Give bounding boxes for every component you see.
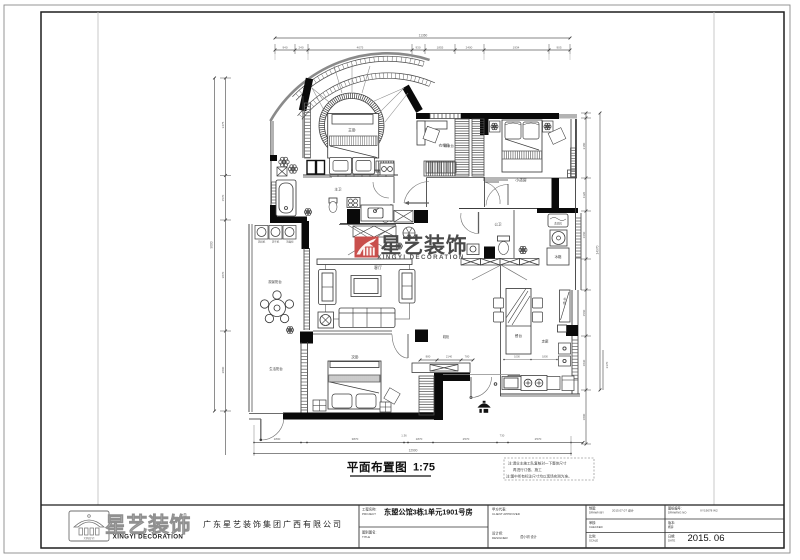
svg-text:3870: 3870 [352, 437, 359, 441]
svg-text:®: ® [183, 512, 187, 519]
svg-text:2015. 06: 2015. 06 [688, 533, 725, 544]
svg-text:1870: 1870 [416, 437, 423, 441]
svg-text:905: 905 [556, 46, 561, 50]
svg-text:DRAWING NO: DRAWING NO [668, 511, 687, 515]
svg-text:11360: 11360 [419, 34, 428, 38]
svg-text:概算: 概算 [668, 525, 674, 529]
svg-text:消毒柜: 消毒柜 [286, 240, 294, 244]
svg-text:2015.07.07 设计: 2015.07.07 设计 [612, 508, 634, 513]
svg-text:注:图中所有标注尺寸均以现场实测为准。: 注:图中所有标注尺寸均以现场实测为准。 [506, 474, 572, 479]
svg-text:柜: 柜 [563, 300, 566, 305]
svg-text:DESIGNER: DESIGNER [492, 536, 509, 540]
svg-text:东盟公馆3栋1单元1901号房: 东盟公馆3栋1单元1901号房 [384, 508, 473, 517]
svg-text:1570: 1570 [221, 194, 225, 201]
svg-text:3475: 3475 [221, 121, 225, 128]
svg-text:洗衣机: 洗衣机 [554, 222, 562, 226]
svg-text:2400: 2400 [466, 46, 473, 50]
svg-text:1120: 1120 [582, 191, 586, 198]
svg-text:客厅: 客厅 [374, 264, 382, 270]
svg-text:12900: 12900 [409, 449, 418, 453]
svg-text:公卫: 公卫 [494, 222, 502, 227]
svg-text:1800: 1800 [582, 413, 586, 420]
svg-text:工程名称:: 工程名称: [362, 507, 377, 512]
svg-text:240: 240 [298, 46, 303, 50]
svg-text:1800: 1800 [274, 437, 281, 441]
svg-text:1560: 1560 [582, 309, 586, 316]
svg-text:1830: 1830 [582, 359, 586, 366]
svg-text:图别图名:: 图别图名: [362, 530, 377, 535]
svg-text:XINGYI DECORATION: XINGYI DECORATION [113, 534, 184, 541]
svg-text:餐台: 餐台 [515, 333, 523, 338]
svg-text:再进行订做、施工: 再进行订做、施工 [513, 467, 542, 472]
svg-text:主卫: 主卫 [334, 187, 342, 192]
svg-text:XINGYI: XINGYI [84, 537, 95, 541]
svg-text:2800: 2800 [221, 366, 225, 373]
svg-text:衣帽间: 衣帽间 [439, 143, 450, 148]
svg-text:1660: 1660 [582, 231, 586, 238]
svg-text:XY19078 W2: XY19078 W2 [700, 509, 718, 513]
svg-text:主卧: 主卧 [348, 127, 356, 133]
svg-text:冰箱: 冰箱 [555, 254, 562, 259]
svg-text:2370: 2370 [605, 361, 609, 368]
svg-text:XINGYI DECORATION: XINGYI DECORATION [377, 254, 465, 261]
svg-text:1855: 1855 [437, 46, 444, 50]
svg-text:730: 730 [500, 434, 505, 438]
svg-text:小孩房: 小孩房 [515, 178, 527, 183]
svg-text:CLIENT APPROVED: CLIENT APPROVED [492, 512, 521, 516]
svg-text:1.36: 1.36 [401, 434, 407, 438]
svg-text:1000: 1000 [514, 355, 520, 359]
svg-text:1934: 1934 [513, 46, 520, 50]
svg-text:注:请业主施工队复核对一下整体尺寸: 注:请业主施工队复核对一下整体尺寸 [508, 461, 567, 466]
svg-text:鞋柜: 鞋柜 [443, 334, 450, 339]
svg-text:谭小明 设计: 谭小明 设计 [520, 534, 538, 539]
svg-text:TITLE: TITLE [362, 535, 370, 539]
svg-text:DATE: DATE [668, 539, 675, 543]
svg-text:洗烘机: 洗烘机 [258, 240, 266, 244]
svg-text:SCALE: SCALE [589, 539, 598, 543]
svg-text:DRAWN BY: DRAWN BY [589, 511, 604, 515]
svg-text:2140: 2140 [446, 355, 453, 359]
svg-text:生活阳台: 生活阳台 [269, 366, 283, 371]
svg-text:平面布置图: 平面布置图 [347, 460, 407, 474]
svg-text:930: 930 [415, 46, 420, 50]
svg-text:940: 940 [282, 46, 287, 50]
svg-text:14970: 14970 [596, 245, 600, 254]
svg-text:次卧: 次卧 [351, 355, 359, 360]
svg-text:2180: 2180 [582, 142, 586, 149]
svg-text:走廊: 走廊 [542, 339, 549, 344]
svg-text:1:75: 1:75 [413, 462, 435, 474]
svg-text:设计师:: 设计师: [492, 531, 503, 536]
svg-text:观景阳台: 观景阳台 [268, 279, 282, 284]
svg-text:2570: 2570 [463, 437, 470, 441]
svg-text:CHECKED: CHECKED [589, 525, 603, 529]
svg-text:广东星艺装饰集团广西有限公司: 广东星艺装饰集团广西有限公司 [203, 519, 343, 529]
svg-text:3870: 3870 [221, 271, 225, 278]
svg-text:9000: 9000 [210, 241, 214, 248]
svg-text:甲方代表:: 甲方代表: [492, 507, 507, 512]
svg-text:880: 880 [426, 355, 431, 359]
svg-text:1800: 1800 [542, 355, 548, 359]
svg-text:PROJECT: PROJECT [362, 512, 376, 516]
svg-text:4075: 4075 [357, 46, 364, 50]
svg-text:洗平机: 洗平机 [272, 240, 280, 244]
svg-text:2570: 2570 [535, 437, 542, 441]
svg-text:780: 780 [465, 355, 470, 359]
